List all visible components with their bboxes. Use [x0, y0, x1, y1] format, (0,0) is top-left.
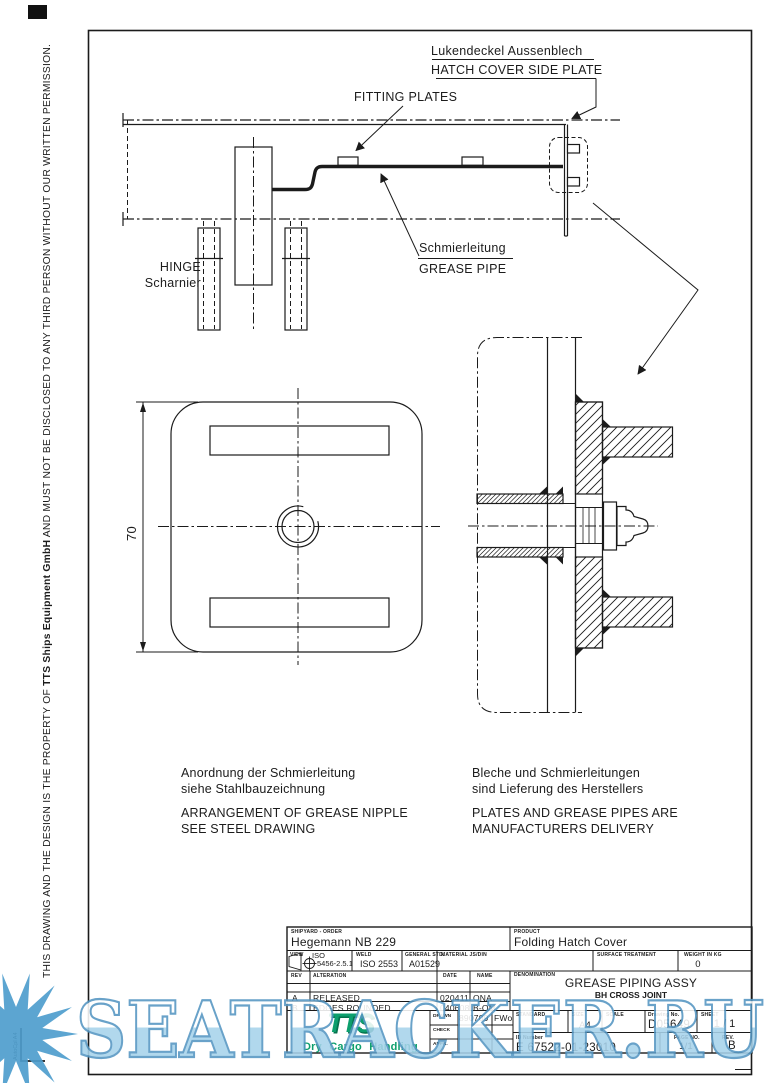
appr-header: APPR. [433, 1042, 448, 1048]
note-left-en1: ARRANGEMENT OF GREASE NIPPLE [181, 806, 408, 822]
denomination-line2: BH CROSS JOINT [510, 990, 752, 1001]
note-left-en2: SEE STEEL DRAWING [181, 822, 408, 838]
rev-b-date: 040608 [440, 1003, 470, 1014]
side-plate-label-en: HATCH COVER SIDE PLATE [431, 63, 602, 79]
view-iso-line2: 5456-2.5.1 [317, 959, 353, 968]
dimension-70-label: 70 [124, 526, 140, 541]
drawing-no-header: Drawing No. [648, 1012, 679, 1018]
grease-pipe-label-en: GREASE PIPE [419, 262, 506, 278]
size-header: SIZE [572, 1012, 584, 1018]
punch-mark [28, 5, 47, 19]
note-right-en1: PLATES AND GREASE PIPES ARE [472, 806, 678, 822]
weld-header: WELD [356, 952, 372, 958]
rev-b-rev: B [292, 1003, 298, 1014]
sheet-value: 1 / 1 [697, 1018, 752, 1032]
general-std-header: GENERAL STD. [405, 952, 445, 958]
tts-tagline: Dry Cargo Handling [303, 1041, 418, 1053]
note-right-de2: sind Lieferung des Herstellers [472, 782, 643, 798]
note-right-de: Bleche und Schmierleitungen sind Lieferu… [472, 766, 643, 797]
check-header: CHECK [433, 1028, 450, 1034]
note-left-de1: Anordnung der Schmierleitung [181, 766, 355, 782]
alteration-col-header: ALTERATION [313, 973, 346, 979]
view-header: VIEW [290, 952, 304, 958]
side-plate-label: Lukendeckel Aussenblech HATCH COVER SIDE… [431, 44, 602, 78]
material-header: MATERIAL JS/DIN [441, 952, 487, 958]
note-left-de2: siehe Stahlbauzeichnung [181, 782, 355, 798]
note-right-de1: Bleche und Schmierleitungen [472, 766, 643, 782]
notice-part2: AND MUST NOT BE DISCLOSED TO ANY THIRD P… [42, 44, 53, 540]
drawn-name: FWo [494, 1013, 512, 1024]
product-value: Folding Hatch Cover [514, 935, 627, 950]
note-right-en: PLATES AND GREASE PIPES ARE MANUFACTURER… [472, 806, 678, 837]
surface-treatment-header: SURFACE TREATMENT [597, 952, 656, 958]
shipyard-order-value: Hegemann NB 229 [291, 935, 396, 950]
weight-value: 0 [678, 959, 718, 971]
date-col-header: DATE [443, 973, 457, 979]
grease-pipe-label: Schmierleitung GREASE PIPE [419, 241, 506, 277]
note-left-en: ARRANGEMENT OF GREASE NIPPLE SEE STEEL D… [181, 806, 408, 837]
drawn-header: DRAWN [433, 1014, 451, 1020]
id-number-value: E 67522-01-23010 [516, 1041, 616, 1055]
hinge-label-en: HINGE [144, 260, 201, 276]
drawing-sheet: { "sidebar": { "notice_part1": "THIS DRA… [0, 0, 765, 1083]
weld-value: ISO 2553 [360, 959, 398, 970]
size-value: A4 [568, 1020, 602, 1032]
grease-pipe-label-de: Schmierleitung [419, 241, 506, 257]
rev-box-value: B [712, 1039, 752, 1053]
fitting-plates-label: FITTING PLATES [354, 90, 457, 106]
text-layer: THIS DRAWING AND THE DESIGN IS THE PROPE… [0, 0, 765, 1083]
notice-part1: THIS DRAWING AND THE DESIGN IS THE PROPE… [42, 686, 53, 978]
tts-logo: TTS [327, 1008, 372, 1039]
drawing-no-value: D05649 [648, 1018, 690, 1032]
name-col-header: NAME [477, 973, 493, 979]
general-std-value: A01529 [409, 959, 440, 970]
weight-header: WEIGHT IN KG [684, 952, 722, 958]
side-plate-label-de: Lukendeckel Aussenblech [431, 44, 602, 60]
scale-header: SCALE [606, 1012, 624, 1018]
hinge-label: HINGE Scharnier [144, 260, 201, 291]
corner-mark-label: AutoCpl A4 [13, 1032, 19, 1060]
drawn-date: 890709 [459, 1013, 489, 1024]
note-right-en2: MANUFACTURERS DELIVERY [472, 822, 678, 838]
note-left-de: Anordnung der Schmierleitung siehe Stahl… [181, 766, 355, 797]
hinge-label-de: Scharnier [144, 276, 201, 292]
rev-b-name: B-OM [473, 1003, 496, 1014]
page-no-value: 1/1 [660, 1041, 712, 1053]
rev-col-header: REV [291, 973, 302, 979]
notice-company: TTS Ships Equipment GmbH [42, 540, 53, 686]
property-notice: THIS DRAWING AND THE DESIGN IS THE PROPE… [42, 85, 53, 978]
standard-header: STANDARD [516, 1012, 545, 1018]
